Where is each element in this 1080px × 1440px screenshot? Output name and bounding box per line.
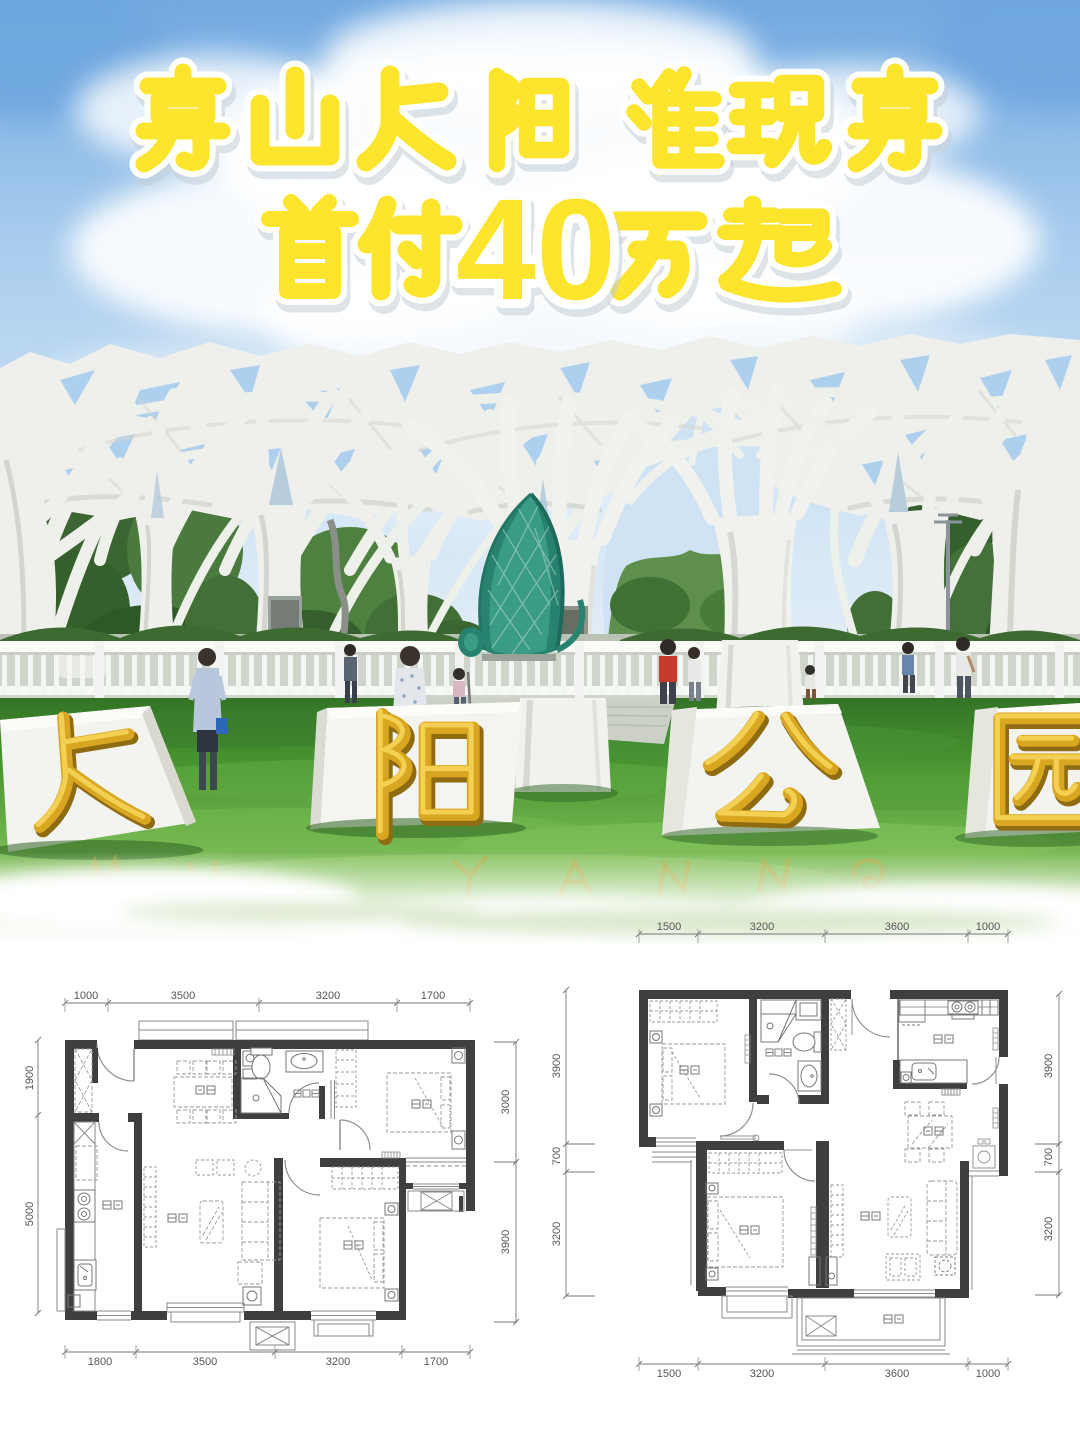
svg-text:3200: 3200 <box>326 1356 350 1368</box>
svg-text:1700: 1700 <box>424 1356 448 1368</box>
svg-text:3200: 3200 <box>1043 1217 1055 1241</box>
svg-text:3200: 3200 <box>750 921 774 933</box>
svg-text:3500: 3500 <box>171 990 195 1002</box>
svg-text:1900: 1900 <box>24 1066 36 1090</box>
svg-text:3900: 3900 <box>500 1230 512 1254</box>
svg-text:1700: 1700 <box>421 990 445 1002</box>
svg-text:1000: 1000 <box>74 990 98 1002</box>
svg-text:1000: 1000 <box>976 1368 1000 1380</box>
svg-text:3200: 3200 <box>750 1368 774 1380</box>
svg-text:3000: 3000 <box>500 1090 512 1114</box>
svg-text:700: 700 <box>1043 1148 1055 1166</box>
svg-text:3200: 3200 <box>316 990 340 1002</box>
svg-text:3600: 3600 <box>885 921 909 933</box>
svg-text:5000: 5000 <box>24 1202 36 1226</box>
svg-text:1000: 1000 <box>976 921 1000 933</box>
svg-text:3600: 3600 <box>885 1368 909 1380</box>
svg-text:3900: 3900 <box>1043 1054 1055 1078</box>
svg-text:3900: 3900 <box>551 1054 563 1078</box>
svg-text:3500: 3500 <box>193 1356 217 1368</box>
svg-text:700: 700 <box>551 1147 563 1165</box>
svg-text:1500: 1500 <box>657 921 681 933</box>
svg-text:40: 40 <box>456 169 616 330</box>
svg-text:1800: 1800 <box>88 1356 112 1368</box>
svg-text:3200: 3200 <box>551 1222 563 1246</box>
svg-text:1500: 1500 <box>657 1368 681 1380</box>
